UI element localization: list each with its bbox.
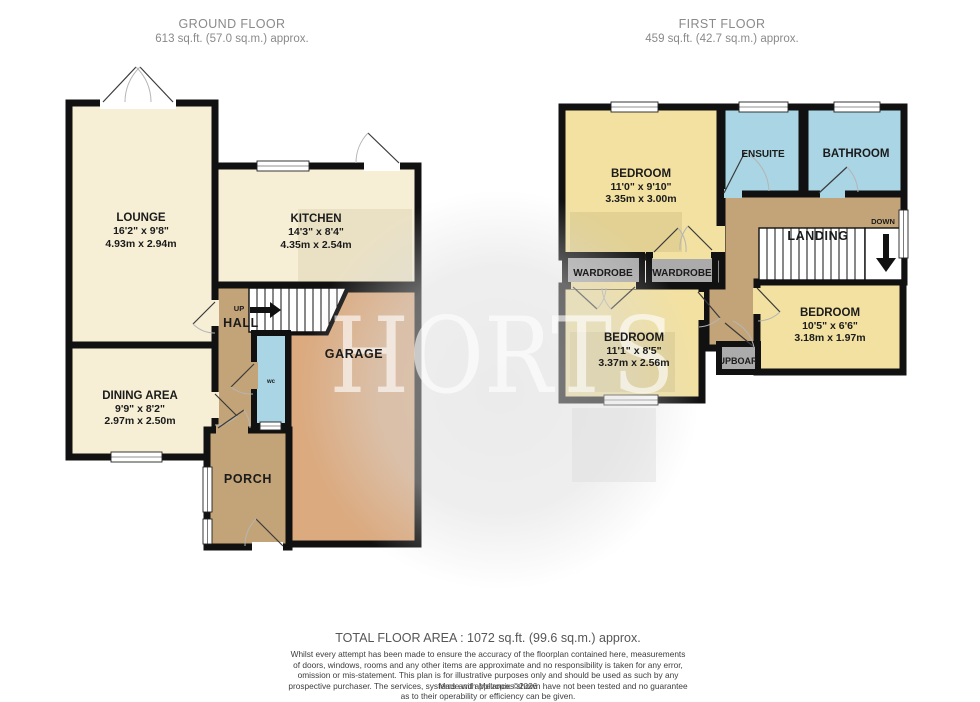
dining-dims-m: 2.97m x 2.50m <box>104 415 175 427</box>
landing-label: LANDING <box>787 229 848 243</box>
ensuite-window <box>739 102 788 112</box>
bedroom1-label: BEDROOM <box>611 168 671 180</box>
kitchen-window <box>257 161 309 171</box>
total-floor-area: TOTAL FLOOR AREA : 1072 sq.ft. (99.6 sq.… <box>188 631 788 645</box>
bedroom3-dims-ft: 10'5" x 6'6" <box>802 320 858 332</box>
bedroom1-dims-m: 3.35m x 3.00m <box>605 193 676 205</box>
landing-window <box>899 210 908 258</box>
floorplan-canvas: HORTS LOUNGE 16'2" x 9'8" 4.93m x 2.94m … <box>0 0 980 695</box>
kitchen-label: KITCHEN <box>290 213 341 225</box>
lounge-room <box>69 103 215 345</box>
up-label: UP <box>234 304 244 313</box>
garage-label: GARAGE <box>325 347 383 361</box>
hall-label: HALL <box>223 316 259 330</box>
lounge-dims-m: 4.93m x 2.94m <box>105 238 176 250</box>
dining-dims-ft: 9'9" x 8'2" <box>115 403 165 415</box>
wardrobe-right-label: WARDROBE <box>652 268 712 279</box>
porch-label: PORCH <box>224 472 272 486</box>
lounge-dims-ft: 16'2" x 9'8" <box>113 225 169 237</box>
dining-window <box>111 452 162 462</box>
bathroom-window <box>834 102 880 112</box>
wardrobe-left-label: WARDROBE <box>573 268 633 279</box>
bedroom3-label: BEDROOM <box>800 307 860 319</box>
wc-label: wc <box>266 379 276 385</box>
bedroom2-dims-m: 3.37m x 2.56m <box>598 357 669 369</box>
bathroom-label: BATHROOM <box>823 148 890 160</box>
bedroom3-dims-m: 3.18m x 1.97m <box>794 332 865 344</box>
porch-windows <box>203 467 212 544</box>
kitchen-dims-m: 4.35m x 2.54m <box>280 239 351 251</box>
ensuite-label: ENSUITE <box>741 149 785 160</box>
credit-text: Made with Metropix ©2026 <box>288 681 688 691</box>
wc-window <box>260 422 281 430</box>
bedroom2-label: BEDROOM <box>604 332 664 344</box>
kitchen-dims-ft: 14'3" x 8'4" <box>288 226 344 238</box>
floorplan-page: GROUND FLOOR 613 sq.ft. (57.0 sq.m.) app… <box>0 0 980 695</box>
lounge-label: LOUNGE <box>116 212 166 224</box>
watermark: HORTS <box>300 190 700 590</box>
bedroom1-dims-ft: 11'0" x 9'10" <box>610 181 671 193</box>
disclaimer-text: Whilst every attempt has been made to en… <box>288 649 688 702</box>
down-label: DOWN <box>871 217 895 226</box>
bedroom1-window <box>611 102 658 112</box>
lounge-french-doors <box>100 67 176 109</box>
bedroom2-dims-ft: 11'1" x 8'5" <box>606 345 661 357</box>
watermark-square <box>572 408 656 482</box>
dining-label: DINING AREA <box>102 390 178 402</box>
